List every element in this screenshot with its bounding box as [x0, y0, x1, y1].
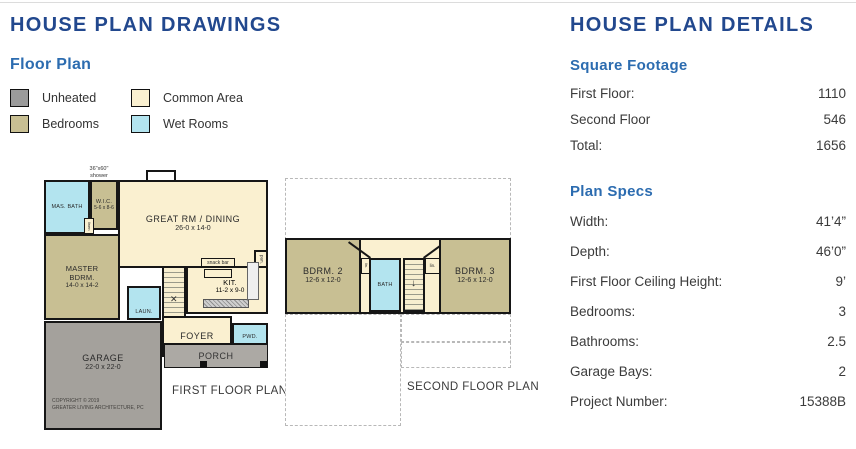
porch-post — [200, 361, 207, 368]
porch-room: PORCH — [164, 343, 268, 368]
first-floor-caption: FIRST FLOOR PLAN — [172, 385, 287, 397]
drawings-title: HOUSE PLAN DRAWINGS — [10, 14, 281, 37]
unheated-swatch — [10, 89, 29, 107]
walk-in-closet-room: W.I.C. 5-6 x 8-6 — [90, 180, 118, 230]
first-floor-plan: 36"x60" shower MAS. BATH W.I.C. 5-6 x 8-… — [40, 166, 272, 434]
spec-row-project-number: Project Number: 15388B — [570, 394, 846, 409]
snack-bar-island — [204, 269, 232, 278]
legend-label: Bedrooms — [42, 117, 99, 131]
bedrooms-swatch — [10, 115, 29, 133]
laundry-room: LAUN. — [127, 286, 161, 320]
garage-room: GARAGE 22-0 x 22-0 — [44, 321, 162, 430]
spec-row-depth: Depth: 46’0” — [570, 244, 846, 259]
legend-item-bedrooms: Bedrooms — [10, 115, 99, 133]
bedroom-2-room: BDRM. 2 12-6 x 12-0 — [285, 238, 361, 314]
details-title: HOUSE PLAN DETAILS — [570, 14, 814, 37]
legend-label: Unheated — [42, 91, 96, 105]
linen-closet: linen — [84, 218, 94, 234]
stair-down-arrow: ↓ — [411, 278, 416, 289]
second-floor-plan: BDRM. 2 12-6 x 12-0 lin. BATH ↓ lin. BDR… — [285, 178, 513, 434]
roof-outline-right-step — [401, 342, 511, 368]
roof-outline-top — [285, 178, 511, 240]
wet-rooms-swatch — [131, 115, 150, 133]
sqft-row-total: Total: 1656 — [570, 138, 846, 153]
sqft-row-second-floor: Second Floor 546 — [570, 112, 846, 127]
details-panel: HOUSE PLAN DETAILS Square Footage First … — [570, 0, 846, 449]
legend-label: Common Area — [163, 91, 243, 105]
plan-specs-heading: Plan Specs — [570, 183, 653, 200]
sqft-row-first-floor: First Floor: 1110 — [570, 86, 846, 101]
stair-x-mark: ✕ — [170, 294, 178, 305]
great-room: GREAT RM / DINING 26-0 x 14-0 — [118, 180, 268, 268]
bedroom-3-room: BDRM. 3 12-6 x 12-0 — [439, 238, 511, 314]
spec-row-garage-bays: Garage Bays: 2 — [570, 364, 846, 379]
master-bedroom-room: MASTER BDRM. 14-0 x 14-2 — [44, 234, 120, 320]
spec-row-ceiling-height: First Floor Ceiling Height: 9’ — [570, 274, 846, 289]
kitchen-counter-hatch — [203, 299, 249, 308]
legend-item-common-area: Common Area — [131, 89, 243, 107]
copyright-note: COPYRIGHT © 2019 GREATER LIVING ARCHITEC… — [52, 398, 144, 412]
floor-plan-subtitle: Floor Plan — [10, 56, 91, 74]
spec-row-bedrooms: Bedrooms: 3 — [570, 304, 846, 319]
roof-outline-lower-left — [285, 314, 401, 426]
spec-row-bathrooms: Bathrooms: 2.5 — [570, 334, 846, 349]
common-area-swatch — [131, 89, 150, 107]
bathroom-room: BATH — [369, 258, 401, 312]
porch-post — [260, 361, 267, 368]
snack-bar-label-box: snack bar — [201, 258, 235, 267]
legend-label: Wet Rooms — [163, 117, 228, 131]
linen-closet-right: lin. — [425, 258, 440, 274]
second-floor-caption: SECOND FLOOR PLAN — [407, 381, 539, 393]
legend-item-unheated: Unheated — [10, 89, 96, 107]
shower-note: 36"x60" shower — [76, 166, 122, 179]
square-footage-heading: Square Footage — [570, 57, 688, 74]
legend-item-wet-rooms: Wet Rooms — [131, 115, 228, 133]
kitchen-counter-right — [247, 262, 259, 300]
spec-row-width: Width: 41’4” — [570, 214, 846, 229]
roof-outline-right-step — [401, 314, 511, 342]
